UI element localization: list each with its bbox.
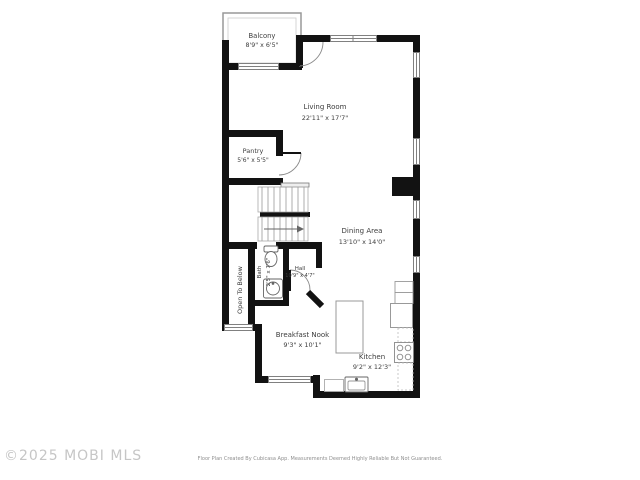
room-dimensions: 9'2" x 12'3" [337, 362, 407, 372]
counter [398, 328, 413, 342]
stair-rail [260, 212, 310, 217]
window [269, 377, 311, 383]
room-label-pantry: Pantry 5'6" x 5'5" [230, 147, 276, 165]
stair-landing-rail [281, 183, 309, 187]
room-dimensions: 8'9" x 6'5" [227, 41, 297, 51]
room-dimensions: 9'3" x 10'1" [259, 340, 346, 350]
wall-segment [222, 40, 229, 331]
room-label-dining-area: Dining Area 13'10" x 14'0" [322, 226, 402, 248]
wall-segment [248, 242, 255, 324]
counter [395, 282, 413, 293]
window [414, 53, 420, 78]
wall-segment [222, 178, 283, 185]
room-name: Breakfast Nook [259, 330, 346, 340]
window [414, 201, 420, 219]
room-label-hall: Hall 10'9" x 4'7" [283, 266, 317, 280]
room-label-kitchen: Kitchen 9'2" x 12'3" [337, 352, 407, 372]
room-name: Dining Area [322, 226, 402, 237]
window [414, 139, 420, 165]
stair-treads-upper [262, 187, 304, 212]
room-label-living-room: Living Room 22'11" x 17'7" [285, 102, 365, 124]
room-dimensions: 22'11" x 17'7" [285, 113, 365, 124]
room-name: Bath [256, 242, 265, 302]
room-name: Balcony [227, 31, 297, 41]
counter [395, 293, 413, 304]
floor-plan-drawing [0, 0, 640, 480]
room-label-breakfast-nook: Breakfast Nook 9'3" x 10'1" [259, 330, 346, 350]
room-dimensions: 2'5" x 7'6" [265, 242, 274, 302]
room-label-open-to-below: Open To Below [235, 250, 247, 330]
room-label-bath: Bath 2'5" x 7'6" [256, 242, 276, 302]
room-dimensions: 13'10" x 14'0" [322, 237, 402, 248]
window [331, 36, 377, 42]
wall-segment [222, 130, 283, 137]
disclaimer-text: Floor Plan Created By Cubicasa App. Meas… [0, 456, 640, 462]
door-pantry [279, 153, 301, 175]
room-name: Kitchen [337, 352, 407, 362]
floor-plan-page: Balcony 8'9" x 6'5" Living Room 22'11" x… [0, 0, 640, 480]
wall-segment [276, 242, 322, 249]
fireplace [392, 177, 420, 196]
room-name: Pantry [230, 147, 276, 156]
wall-chamfer [308, 292, 322, 306]
kitchen-sink [345, 377, 368, 392]
window [239, 64, 279, 70]
stairs [258, 183, 309, 241]
room-label-balcony: Balcony 8'9" x 6'5" [227, 31, 297, 51]
room-dimensions: 10'9" x 4'7" [283, 273, 317, 280]
dishwasher [325, 380, 344, 392]
window [414, 257, 420, 273]
refrigerator [391, 304, 413, 328]
wall-segment [318, 391, 420, 398]
room-dimensions: 5'6" x 5'5" [230, 156, 276, 165]
stair-arrow-head [297, 226, 304, 233]
room-name: Living Room [285, 102, 365, 113]
room-name: Hall [283, 266, 317, 273]
